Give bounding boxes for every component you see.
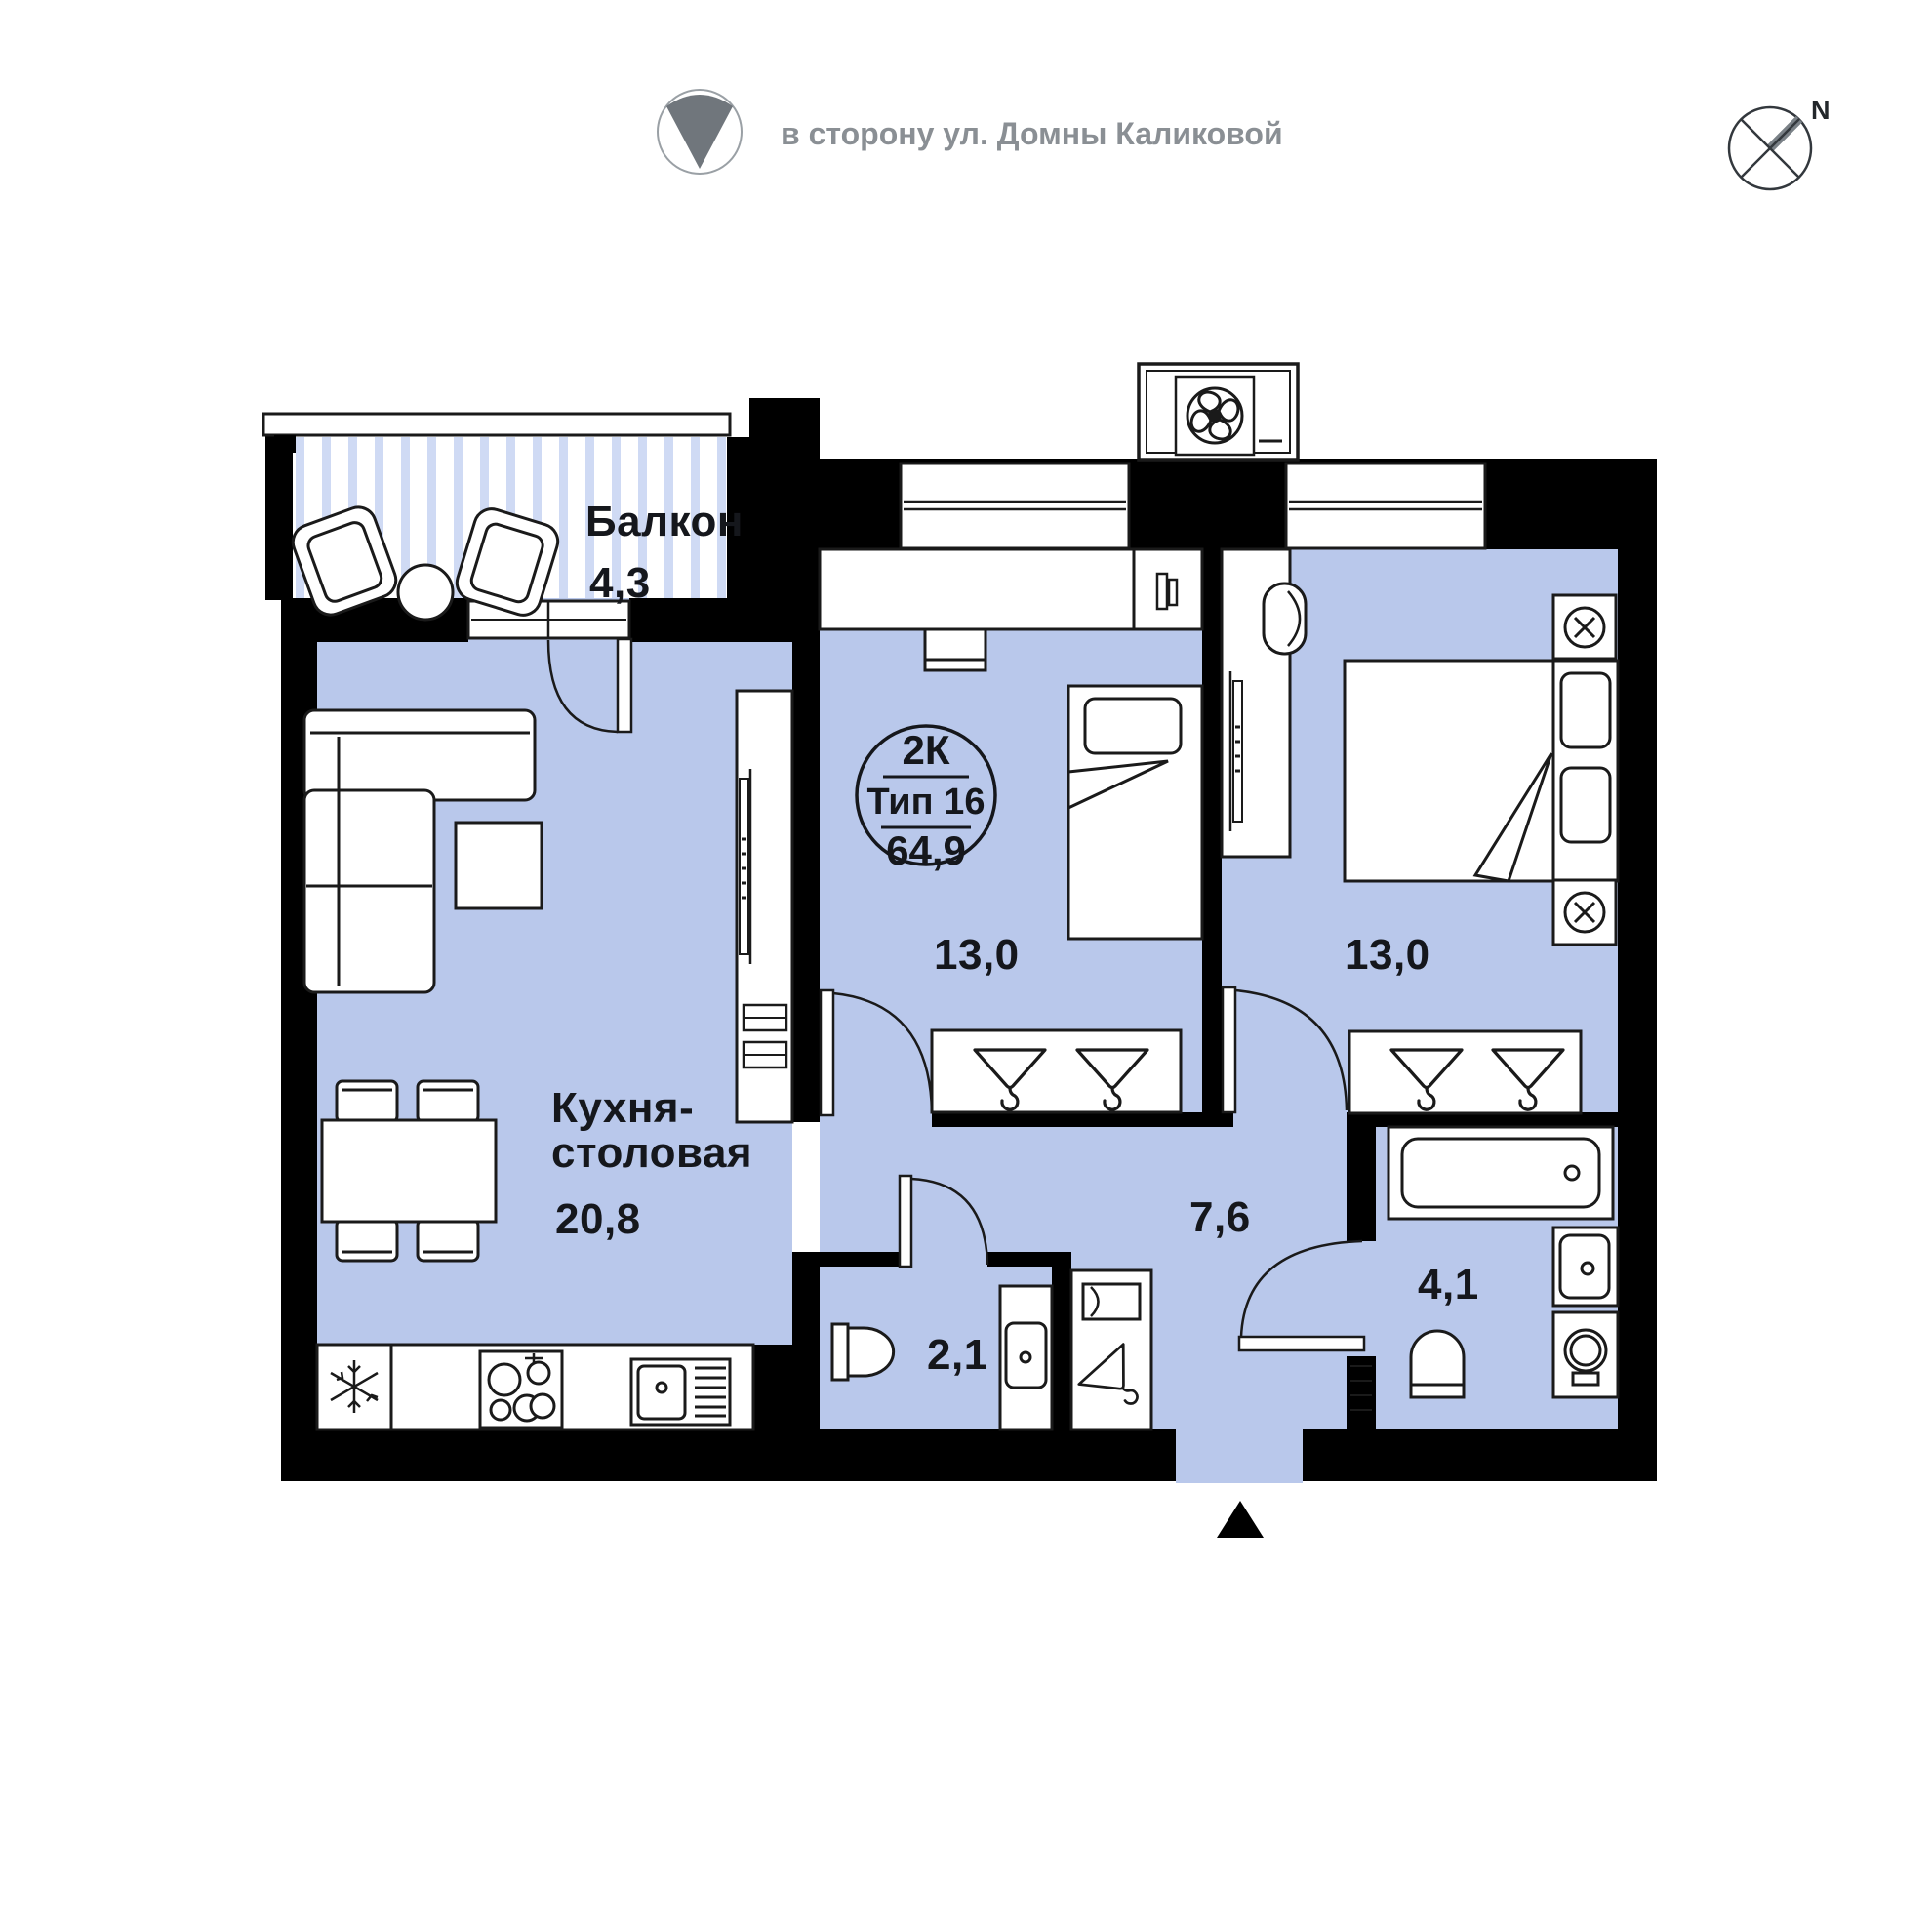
tv-unit	[737, 691, 792, 1122]
toilet-icon	[1411, 1331, 1464, 1397]
entrance-passage	[1176, 1429, 1303, 1483]
washbasin-icon	[1000, 1286, 1052, 1429]
wc-area: 2,1	[927, 1331, 988, 1379]
bedroom2-area: 13,0	[1345, 931, 1430, 979]
direction-text: в сторону ул. Домны Каликовой	[781, 116, 1283, 151]
dining-chair	[418, 1081, 478, 1122]
bathroom-area: 4,1	[1418, 1261, 1479, 1308]
balcony-table	[398, 565, 453, 620]
badge-area: 64,9	[886, 827, 966, 873]
pillow	[1085, 699, 1181, 753]
wardrobe	[1349, 1031, 1581, 1113]
dining-chair	[337, 1220, 397, 1261]
floor-plan-page: { "header": { "direction_text": "в сторо…	[0, 0, 1932, 1932]
kitchen-label-line1: Кухня-	[551, 1084, 694, 1132]
dining-chair	[337, 1081, 397, 1122]
washing-machine-icon	[1553, 1312, 1618, 1397]
dining-table	[322, 1120, 496, 1222]
radiator-icon	[1157, 574, 1177, 609]
badge-type: Тип 16	[867, 782, 986, 823]
sconce-lamp-icon	[1565, 893, 1604, 932]
wardrobe	[932, 1030, 1181, 1112]
pillow	[1561, 673, 1610, 747]
window	[901, 463, 1129, 548]
bed	[1068, 686, 1202, 939]
dining-chair	[418, 1220, 478, 1261]
hallway-area: 7,6	[1189, 1193, 1251, 1241]
pillow	[1561, 768, 1610, 842]
bedroom1-area: 13,0	[934, 931, 1020, 979]
badge-rooms: 2К	[903, 727, 950, 773]
kitchen-hall-opening	[792, 1122, 820, 1252]
compass-north-label: N	[1811, 96, 1831, 125]
kitchen-label-line2: столовая	[551, 1129, 752, 1177]
vent-stub	[925, 629, 986, 670]
kitchen-counter	[317, 1345, 753, 1429]
kitchen-sink-icon	[631, 1359, 730, 1425]
coffee-table	[456, 823, 542, 908]
sconce-lamp-icon	[1565, 608, 1604, 647]
kitchen-area: 20,8	[555, 1195, 641, 1243]
floor-plan-svg: Балкон 4,3 Кухня- столовая 20,8 13,0 13,…	[0, 0, 1932, 1932]
direction-indicator-icon	[658, 90, 742, 174]
window-ledge-cabinet	[820, 549, 1202, 629]
bed	[1345, 661, 1618, 881]
balcony-area: 4,3	[589, 559, 651, 607]
ac-fan-unit-icon	[1139, 364, 1298, 460]
mirror-console	[1071, 1270, 1157, 1429]
window	[1286, 463, 1485, 548]
tv-icon	[740, 769, 750, 964]
balcony-label: Балкон	[585, 498, 744, 545]
balcony-railing	[263, 414, 730, 435]
bathtub-icon	[1389, 1127, 1613, 1219]
washbasin-icon	[1553, 1228, 1618, 1306]
stove-burners-icon	[480, 1351, 562, 1428]
